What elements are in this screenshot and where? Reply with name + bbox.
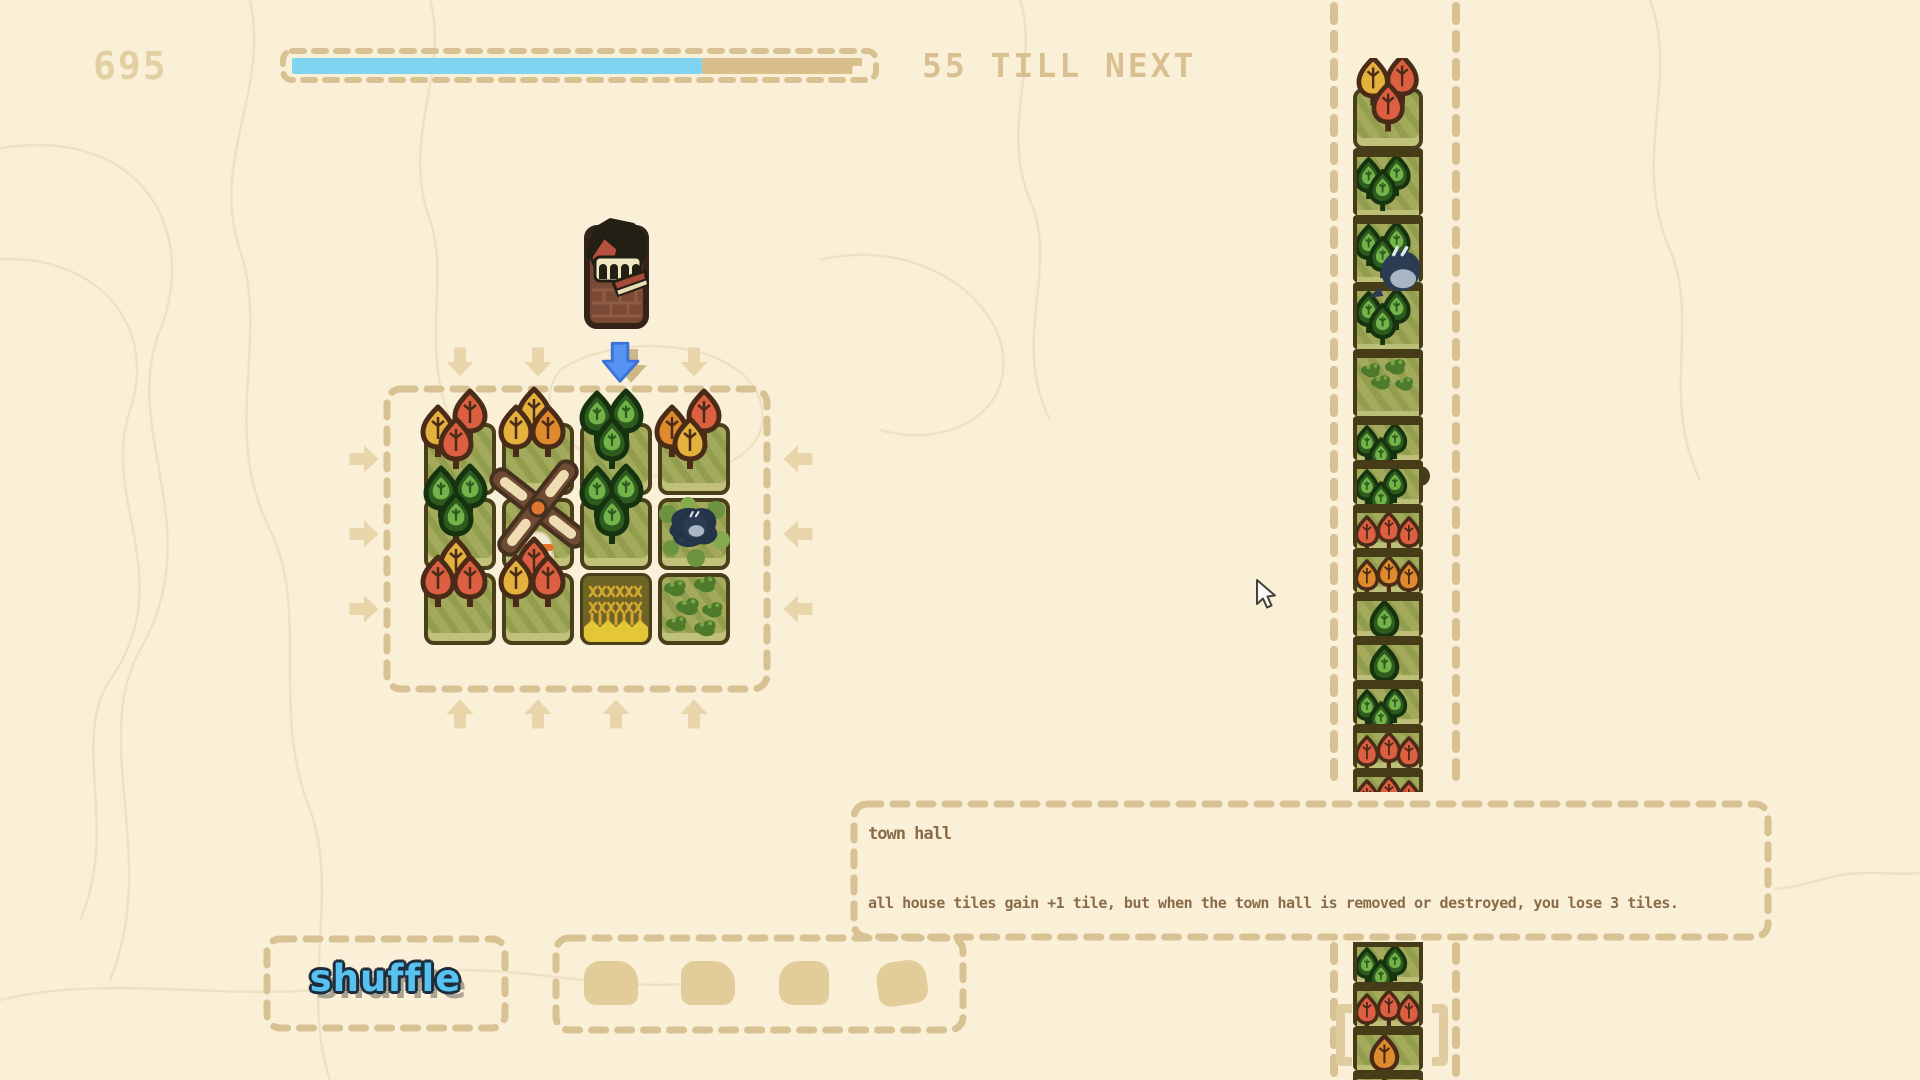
queue-red-icon xyxy=(1357,733,1419,763)
push-arrow-top-col3[interactable] xyxy=(678,345,710,379)
queue-tile-red-6 xyxy=(1353,504,1423,548)
push-arrow-bottom-col2[interactable] xyxy=(600,697,632,731)
push-arrow-top-col0[interactable] xyxy=(444,345,476,379)
queue-red-icon xyxy=(1357,513,1419,543)
queue-tile-red-11 xyxy=(1353,724,1423,768)
push-arrow-bottom-col0[interactable] xyxy=(444,697,476,731)
queue-tile-forest-5 xyxy=(1353,460,1423,504)
queue-tile-forest-4 xyxy=(1353,416,1423,460)
score-value: 695 xyxy=(93,44,168,88)
slot-4[interactable] xyxy=(874,958,930,1009)
queue-tile-forest1-9 xyxy=(1353,636,1423,680)
push-arrow-top-col1[interactable] xyxy=(522,345,554,379)
queue-forest-icon xyxy=(1357,689,1419,719)
queue-tile-red-12 xyxy=(1353,768,1423,792)
queue-bushes-icon xyxy=(1357,358,1419,411)
queue-tile-forest-0 xyxy=(1353,148,1423,215)
queue-orange1-icon xyxy=(1357,1035,1419,1065)
tooltip-frame xyxy=(849,799,1774,943)
queue-forest1-icon xyxy=(1357,601,1419,631)
queue-tile-forest1-8 xyxy=(1353,592,1423,636)
queue-orange-icon xyxy=(1357,557,1419,587)
push-arrow-left-row2[interactable] xyxy=(348,592,380,626)
slot-1[interactable] xyxy=(584,961,638,1005)
cursor-pointer xyxy=(1254,578,1284,612)
queue-red-icon xyxy=(1357,777,1419,792)
queue-position-notch xyxy=(1419,466,1430,486)
queue-forest-icon xyxy=(1357,469,1419,499)
queue-tile-lower-orange1-2 xyxy=(1353,1026,1423,1070)
push-arrow-left-row0[interactable] xyxy=(348,442,380,476)
queue-bracket-right xyxy=(1432,1004,1448,1066)
board-tile-bushes-r2c3[interactable] xyxy=(658,573,730,645)
queue-forest-icon xyxy=(1357,947,1419,977)
queue-forest-icon xyxy=(1357,157,1419,210)
queue-tile-lower-forest-0 xyxy=(1353,938,1423,982)
tooltip-title: town hall xyxy=(868,824,951,844)
queue-red-icon xyxy=(1357,991,1419,1021)
tile-queue-lower xyxy=(1353,938,1433,1080)
queue-tile-lower-orange1-3 xyxy=(1353,1070,1423,1080)
slot-2[interactable] xyxy=(681,961,735,1005)
slot-3[interactable] xyxy=(779,961,829,1005)
queue-next-tile-trees xyxy=(1353,88,1423,150)
bird-icon xyxy=(1364,240,1424,300)
push-arrow-left-row1[interactable] xyxy=(348,517,380,551)
till-next-label: 55 TILL NEXT xyxy=(922,46,1196,85)
shuffle-button[interactable]: shuffle xyxy=(266,957,505,1000)
preview-tile-town-hall[interactable] xyxy=(583,216,650,330)
trees-icon xyxy=(1353,58,1431,158)
push-arrow-right-row0[interactable] xyxy=(782,442,814,476)
queue-tile-orange-7 xyxy=(1353,548,1423,592)
queue-tile-lower-red-1 xyxy=(1353,982,1423,1026)
progress-bar-remainder xyxy=(702,58,862,74)
push-arrow-right-row1[interactable] xyxy=(782,517,814,551)
queue-tile-forest-10 xyxy=(1353,680,1423,724)
tooltip-body: all house tiles gain +1 tile, but when t… xyxy=(868,894,1678,912)
queue-tile-bushes-3 xyxy=(1353,349,1423,416)
tile-queue-upper xyxy=(1353,58,1433,792)
queue-bracket-left xyxy=(1336,1004,1352,1066)
push-arrow-right-row2[interactable] xyxy=(782,592,814,626)
push-arrow-bottom-col3[interactable] xyxy=(678,697,710,731)
push-arrow-bottom-col1[interactable] xyxy=(522,697,554,731)
queue-forest1-icon xyxy=(1357,645,1419,675)
progress-bar-fill xyxy=(292,58,702,74)
bushes-icon xyxy=(616,503,776,683)
game-screen: 695 55 TILL NEXT xyxy=(0,0,1920,1080)
queue-forest-icon xyxy=(1357,425,1419,455)
